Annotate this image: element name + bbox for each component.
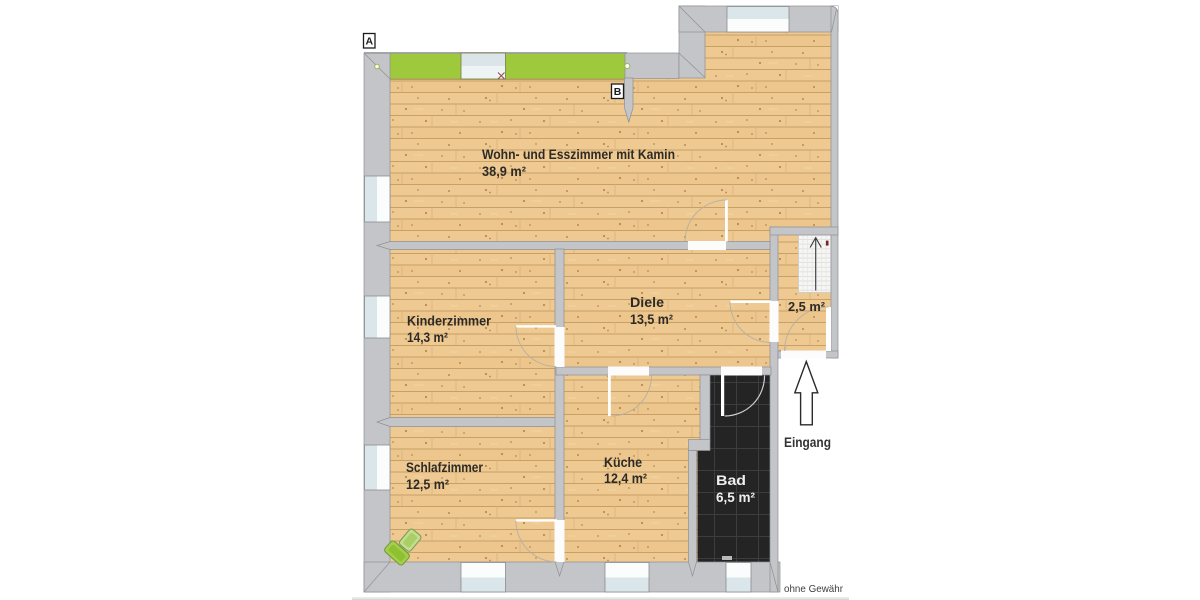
svg-text:6,5 m²: 6,5 m²: [716, 490, 756, 505]
svg-text:Eingang: Eingang: [784, 435, 831, 450]
svg-text:Bad: Bad: [716, 473, 746, 488]
svg-text:14,3 m²: 14,3 m²: [407, 330, 448, 345]
svg-text:A: A: [366, 35, 374, 47]
svg-text:Schlafzimmer: Schlafzimmer: [406, 460, 484, 475]
svg-text:2,5 m²: 2,5 m²: [788, 299, 826, 314]
svg-text:13,5 m²: 13,5 m²: [630, 312, 673, 327]
svg-text:38,9 m²: 38,9 m²: [482, 164, 527, 179]
svg-text:B: B: [614, 86, 622, 98]
svg-text:Kinderzimmer: Kinderzimmer: [407, 314, 492, 329]
svg-text:Wohn- und Esszimmer mit Kamin: Wohn- und Esszimmer mit Kamin: [482, 147, 675, 162]
svg-text:Diele: Diele: [630, 295, 664, 310]
svg-text:12,5 m²: 12,5 m²: [406, 477, 449, 492]
svg-text:12,4 m²: 12,4 m²: [604, 471, 647, 486]
svg-text:ohne Gewähr: ohne Gewähr: [784, 583, 843, 595]
svg-text:Küche: Küche: [604, 455, 642, 470]
